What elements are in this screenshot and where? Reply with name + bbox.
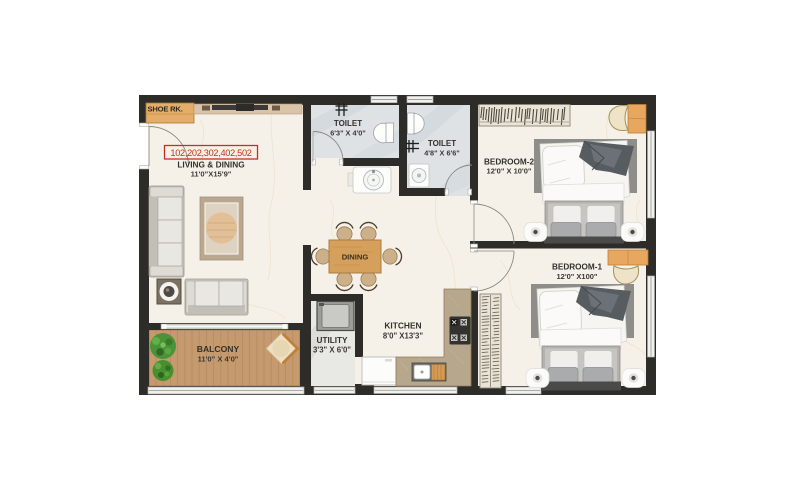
svg-text:DINING: DINING — [342, 253, 369, 262]
svg-text:BEDROOM-2: BEDROOM-2 — [484, 158, 534, 167]
svg-text:BALCONY: BALCONY — [197, 344, 240, 354]
svg-text:12'0" X 10'0": 12'0" X 10'0" — [487, 167, 532, 176]
svg-text:SHOE RK.: SHOE RK. — [148, 105, 183, 114]
svg-text:KITCHEN: KITCHEN — [384, 321, 421, 331]
svg-text:UTILITY: UTILITY — [317, 336, 348, 345]
svg-text:BEDROOM-1: BEDROOM-1 — [552, 263, 602, 272]
svg-text:11'0"X15'9": 11'0"X15'9" — [191, 170, 232, 179]
svg-text:11'0" X 4'0": 11'0" X 4'0" — [198, 355, 239, 364]
svg-text:102,202,302,402,502: 102,202,302,402,502 — [170, 148, 251, 158]
svg-text:6'3" X 4'0": 6'3" X 4'0" — [330, 129, 366, 138]
svg-text:TOILET: TOILET — [428, 139, 456, 148]
svg-text:3'3" X 6'0": 3'3" X 6'0" — [313, 346, 351, 355]
svg-text:8'0" X13'3": 8'0" X13'3" — [383, 332, 423, 341]
svg-text:12'0" X100": 12'0" X100" — [556, 272, 597, 281]
svg-text:4'8" X 6'6": 4'8" X 6'6" — [424, 149, 460, 158]
svg-text:TOILET: TOILET — [334, 119, 362, 128]
svg-text:LIVING & DINING: LIVING & DINING — [177, 160, 244, 170]
